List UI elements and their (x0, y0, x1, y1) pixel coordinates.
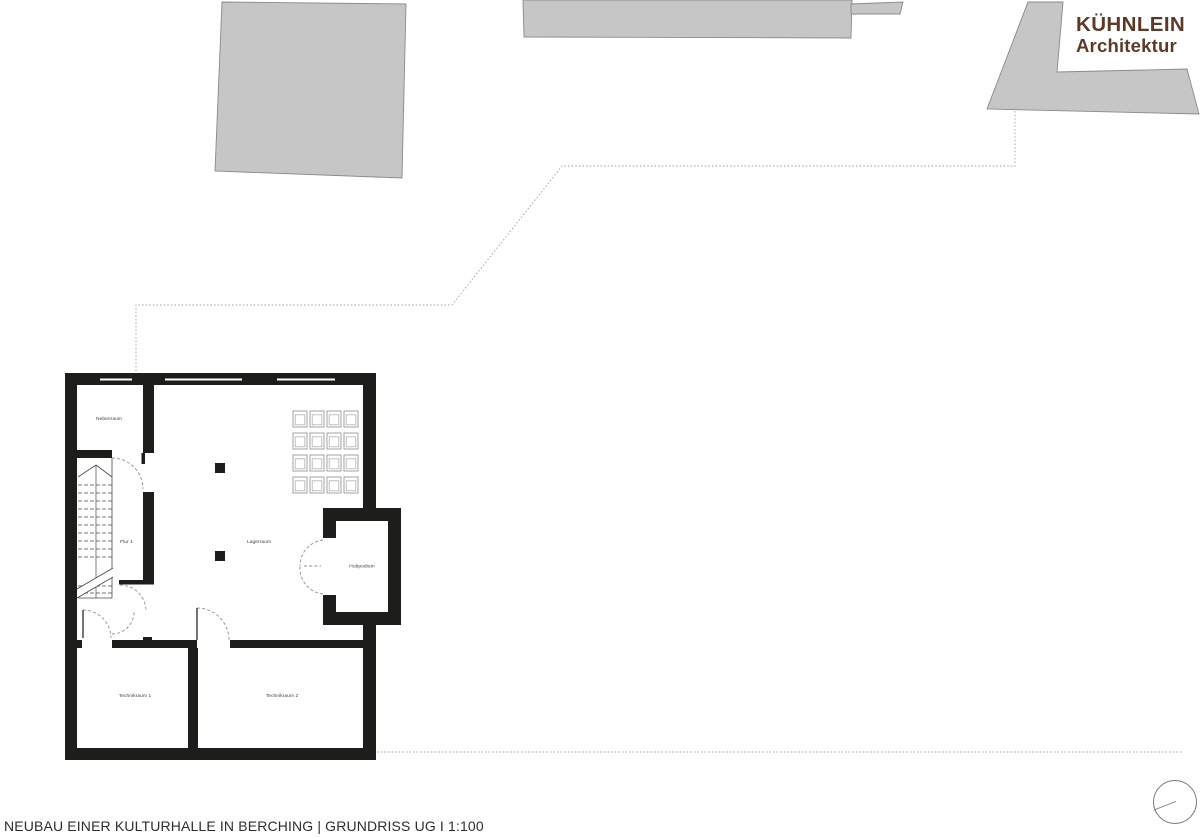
storage-grid-cell-inner (312, 481, 322, 491)
logo-line1: KÜHNLEIN (1076, 14, 1185, 35)
wall-technik-right (230, 640, 363, 648)
neighbor-building-north-annex (851, 2, 903, 14)
door-swing-flur-a (120, 585, 146, 611)
door-swing-technikraum1 (83, 610, 111, 638)
site-plan-drawing: Nebenraum Flur 1 Lagerraum Hubpodium Tec… (0, 0, 1200, 837)
storage-grid-cell-inner (295, 459, 305, 469)
door-swing-technikraum2 (197, 608, 229, 640)
storage-grid-cell-inner (346, 459, 356, 469)
staircase (77, 458, 113, 598)
storage-grid-cell-inner (346, 481, 356, 491)
compass-icon (1154, 781, 1197, 824)
drawing-canvas: Nebenraum Flur 1 Lagerraum Hubpodium Tec… (0, 0, 1200, 837)
storage-grid-cell-inner (329, 481, 339, 491)
hub-wall-stub-lower (323, 595, 336, 625)
storage-grid-cell-inner (346, 415, 356, 425)
logo-line2: Architektur (1076, 35, 1185, 56)
door-panel-nebenraum (142, 453, 146, 464)
stair-break-mask (77, 568, 113, 598)
compass-needle (1154, 802, 1176, 811)
wall-left (65, 373, 77, 760)
door-swing-nebenraum (112, 458, 143, 489)
room-label-technikraum2: Technikraum 2 (266, 693, 299, 699)
room-label-technikraum1: Technikraum 1 (119, 693, 152, 699)
neighbor-buildings (215, 0, 1199, 178)
storage-grid-cell-inner (295, 481, 305, 491)
wall-opening (100, 379, 132, 381)
architect-logo: KÜHNLEIN Architektur (1076, 14, 1185, 56)
room-label-hubpodium: Hubpodium (349, 564, 374, 570)
wall-right-upper (363, 373, 376, 508)
hub-wall-right (388, 508, 401, 625)
column-upper (215, 463, 225, 473)
wall-nebenraum-bottom (77, 450, 112, 458)
storage-grid-cell-inner (329, 459, 339, 469)
storage-grid-cell-inner (295, 415, 305, 425)
site-boundary (136, 111, 1183, 752)
room-label-flur1: Flur 1 (120, 539, 133, 545)
storage-grid (293, 411, 358, 493)
storage-grid-cell-inner (329, 415, 339, 425)
wall-bottom (65, 748, 376, 760)
columns (215, 463, 225, 561)
storage-grid-cell-inner (312, 437, 322, 447)
wall-flur-door-stub (119, 580, 154, 585)
room-label-nebenraum: Nebenraum (96, 416, 122, 422)
stair-arrow-wing-right (96, 465, 112, 477)
wall-opening (277, 379, 335, 381)
neighbor-building-west (215, 2, 406, 178)
wall-technik-mid (112, 640, 197, 648)
wall-technik-divider (188, 648, 198, 748)
stair-arrow-wing-left (78, 465, 96, 477)
wall-flur-lager-upper (143, 385, 154, 453)
storage-grid-cell-inner (346, 437, 356, 447)
storage-grid-cell-inner (295, 437, 305, 447)
hub-wall-stub-upper (323, 508, 336, 538)
storage-grid-cell-inner (329, 437, 339, 447)
wall-flur-lager-lower (143, 492, 154, 583)
storage-grid-cell-inner (312, 459, 322, 469)
wall-right-lower (363, 625, 376, 760)
door-swing-hubpodium-lower (300, 566, 323, 594)
door-panels (83, 608, 197, 640)
wall-opening (165, 379, 242, 381)
door-swings (83, 458, 323, 640)
door-swing-flur-b (112, 612, 134, 634)
storage-grid-cell-inner (312, 415, 322, 425)
floor-plan: Nebenraum Flur 1 Lagerraum Hubpodium Tec… (65, 373, 401, 760)
drawing-title: NEUBAU EINER KULTURHALLE IN BERCHING | G… (4, 818, 484, 834)
wall-technik-left-stub (77, 640, 82, 648)
column-lower (215, 551, 225, 561)
door-swing-hubpodium-upper (300, 540, 323, 566)
neighbor-building-north (523, 0, 852, 38)
room-label-lagerraum: Lagerraum (247, 539, 271, 545)
